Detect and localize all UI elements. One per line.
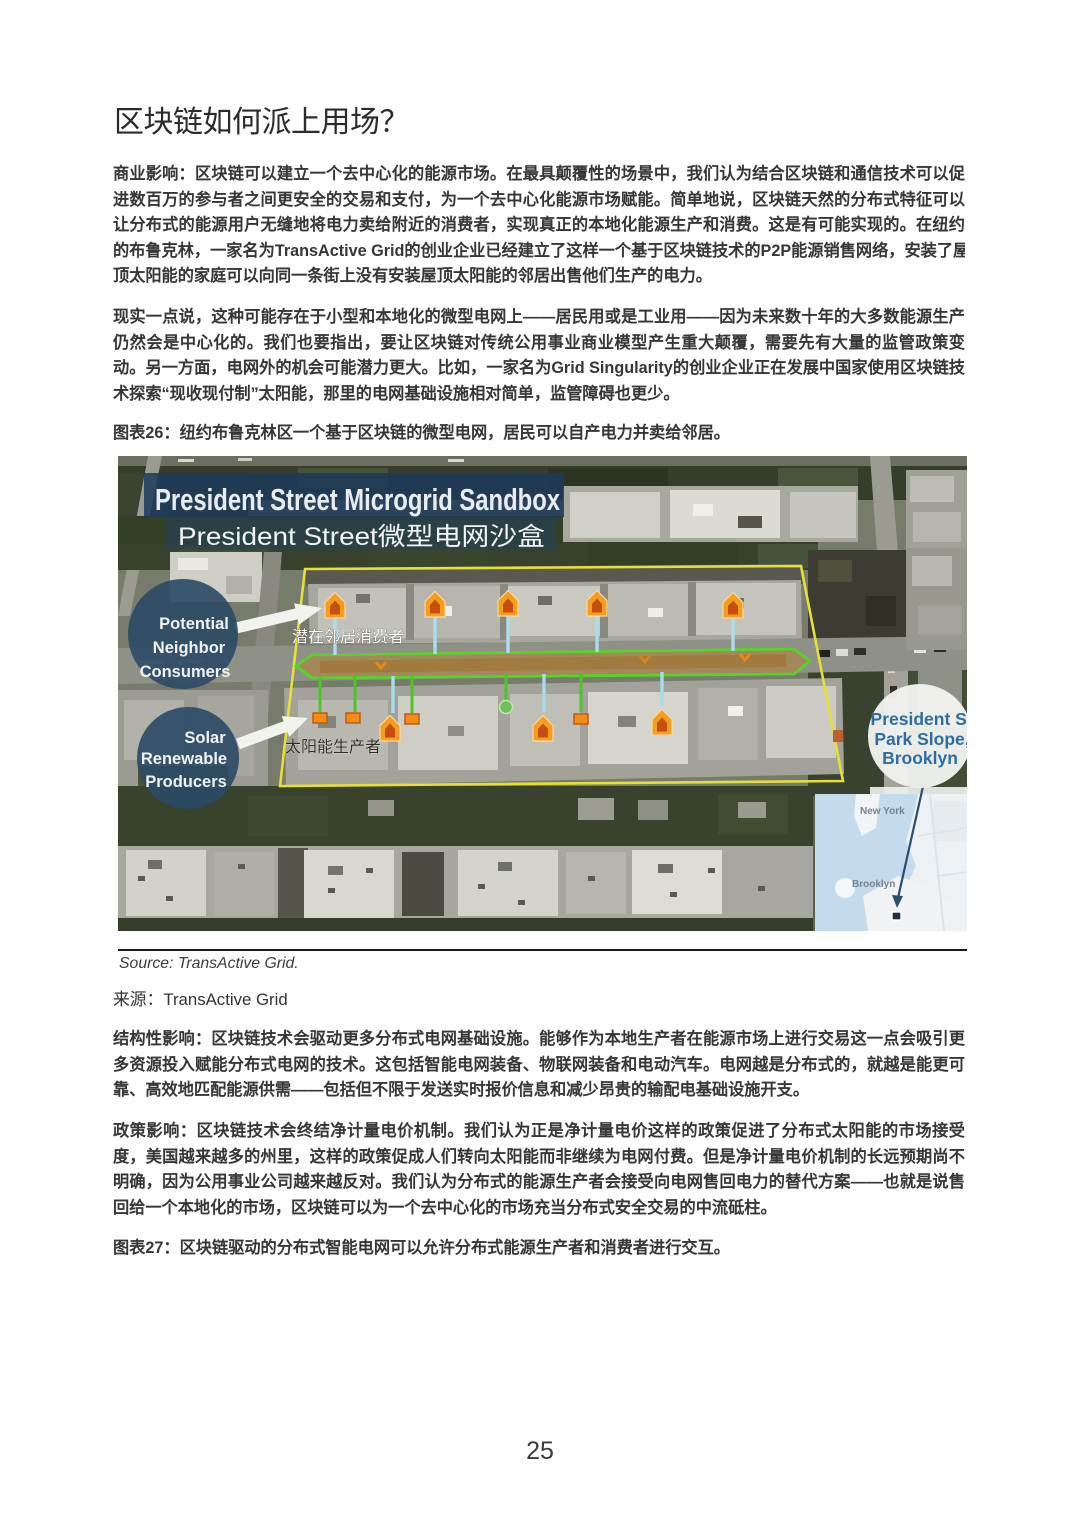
svg-text:Producers: Producers: [145, 773, 227, 791]
svg-text:President Str: President Str: [871, 709, 967, 729]
svg-text:New York: New York: [860, 806, 905, 817]
svg-text:Park Slope,: Park Slope,: [874, 729, 967, 749]
svg-text:Solar: Solar: [184, 729, 226, 747]
svg-text:Renewable: Renewable: [141, 750, 227, 768]
svg-text:President Street Microgrid San: President Street Microgrid Sandbox: [155, 482, 561, 517]
svg-text:Neighbor: Neighbor: [153, 639, 226, 657]
svg-text:Consumers: Consumers: [140, 663, 231, 681]
svg-text:潜在邻居消费者: 潜在邻居消费者: [292, 628, 404, 646]
svg-text:太阳能生产者: 太阳能生产者: [285, 738, 381, 756]
svg-text:Brooklyn: Brooklyn: [882, 748, 958, 768]
svg-text:Brooklyn: Brooklyn: [852, 879, 895, 890]
svg-text:President Street微型电网沙盒: President Street微型电网沙盒: [178, 523, 545, 551]
svg-text:Potential: Potential: [159, 615, 229, 633]
